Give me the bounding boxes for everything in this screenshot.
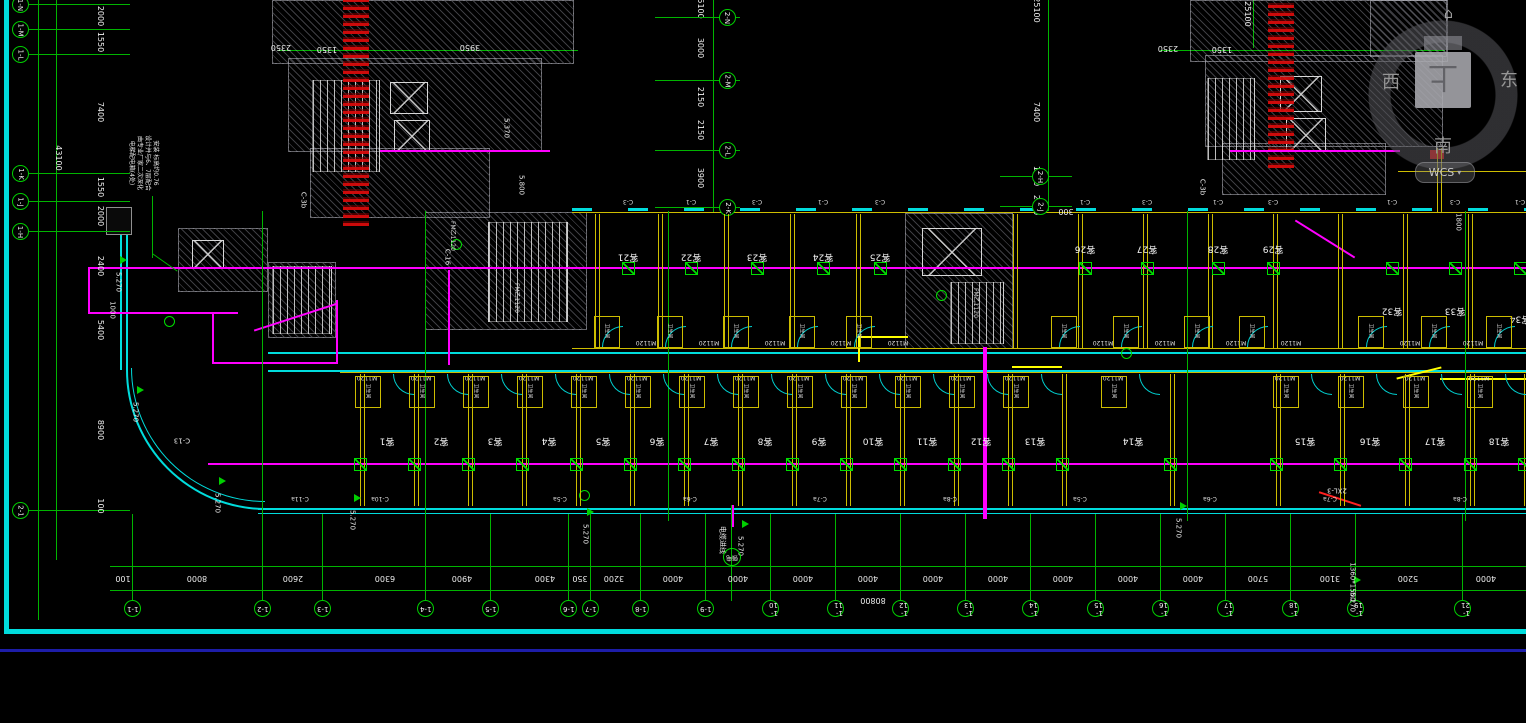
grid-drop-line bbox=[262, 514, 263, 602]
grid-bubble-bottom: 1-17 bbox=[1217, 600, 1234, 617]
bathroom-label: 卫生间 bbox=[1471, 389, 1486, 394]
bathroom-label: 卫生间 bbox=[1425, 329, 1440, 334]
grid-tick bbox=[12, 173, 130, 174]
window-label: C-5a bbox=[1073, 495, 1087, 501]
window-label: C-3 bbox=[1268, 198, 1278, 204]
socket-device-icon bbox=[516, 458, 529, 471]
elevation-text: 5.270 bbox=[1168, 525, 1188, 532]
grid-bubble-bottom: 1-21 bbox=[1454, 600, 1471, 617]
window-label: C-3 bbox=[752, 198, 762, 204]
bathroom-label: 卫生间 bbox=[1243, 329, 1258, 334]
grid-drop-line bbox=[900, 514, 901, 602]
room-label: 客26 bbox=[1075, 244, 1095, 253]
dimension-text: 2000 bbox=[90, 12, 110, 20]
elevation-text: 5.270 bbox=[108, 279, 128, 286]
annotation-text: C-3b bbox=[295, 197, 311, 204]
door-swing-arc bbox=[1041, 374, 1062, 395]
room-label: 客29 bbox=[1263, 244, 1283, 253]
viewport-divider-line bbox=[0, 649, 1526, 652]
wire bbox=[380, 150, 550, 152]
sheet-border-bottom bbox=[4, 629, 1526, 634]
window-label: C-10a bbox=[371, 495, 389, 501]
dimension-text: 8900 bbox=[90, 426, 110, 434]
grid-bubble-left: 1-K bbox=[12, 165, 29, 182]
dimension-total-text: 43100 bbox=[45, 154, 70, 162]
elevation-flag-icon bbox=[137, 386, 144, 394]
dimension-text: 2350 bbox=[271, 43, 291, 51]
grid-tick bbox=[12, 29, 130, 30]
room-label: 客24 bbox=[813, 252, 833, 261]
wire bbox=[1295, 220, 1355, 259]
wcs-selector[interactable]: WCS ▾ bbox=[1415, 162, 1475, 183]
door-label: M1120 bbox=[699, 339, 719, 345]
room-label: 客6 bbox=[650, 436, 665, 445]
door-label: M1120 bbox=[765, 339, 785, 345]
room-label: 客1 bbox=[380, 436, 395, 445]
wire bbox=[88, 267, 90, 314]
elevation-text: 5.270 bbox=[207, 500, 227, 507]
room-label: 客13 bbox=[1025, 436, 1045, 445]
annotation-text: C-3b bbox=[1194, 184, 1210, 191]
socket-device-icon bbox=[678, 458, 691, 471]
room-label: 客34 bbox=[1510, 314, 1526, 323]
grid-bubble-bottom: 1-13 bbox=[957, 600, 974, 617]
grid-drop-line bbox=[1030, 514, 1031, 602]
bathroom-label: 卫生间 bbox=[661, 329, 676, 334]
elevator-shaft bbox=[390, 82, 428, 114]
socket-device-icon bbox=[624, 458, 637, 471]
grid-drop-line bbox=[640, 514, 641, 602]
room-label: 客2 bbox=[434, 436, 449, 445]
grid-bubble-left: 1-M bbox=[12, 21, 29, 38]
dimension-text: 5700 bbox=[1248, 574, 1268, 582]
grid-bubble-left: 1-L bbox=[12, 46, 29, 63]
grid-tick bbox=[12, 510, 130, 511]
window-label: C-1 bbox=[1515, 198, 1525, 204]
room-label: 客9 bbox=[812, 436, 827, 445]
elevation-flag-icon bbox=[742, 520, 749, 528]
socket-device-icon bbox=[354, 458, 367, 471]
wire bbox=[336, 300, 338, 364]
dimension-text: 3900 bbox=[690, 174, 710, 182]
annotation-text: C-13 bbox=[174, 437, 190, 444]
room-label: 客14 bbox=[1123, 436, 1143, 445]
dimension-text: 350 bbox=[572, 574, 587, 582]
dimension-text: 4000 bbox=[1053, 574, 1073, 582]
socket-device-icon bbox=[1518, 458, 1526, 471]
viewcube-east-label[interactable]: 东 bbox=[1500, 66, 1518, 92]
grid-drop-line bbox=[490, 514, 491, 602]
wire-yellow bbox=[1012, 366, 1062, 368]
dimension-text: 2150 bbox=[690, 126, 710, 134]
door-swing-arc bbox=[1311, 374, 1332, 395]
grid-bubble-bottom: 1-10 bbox=[762, 600, 779, 617]
window-sill-line bbox=[258, 508, 1526, 510]
dimension-text: 2600 bbox=[283, 574, 303, 582]
bathroom-label: 卫生间 bbox=[1188, 329, 1203, 334]
annotation-text: 1800 bbox=[1449, 219, 1467, 226]
grid-bubble-bottom: 1-5 bbox=[482, 600, 499, 617]
dimension-text: 4000 bbox=[663, 574, 683, 582]
grid-drop-line bbox=[1095, 514, 1096, 602]
room-label: 客3 bbox=[488, 436, 503, 445]
bathroom-label: 卫生间 bbox=[1117, 329, 1132, 334]
stair-treads bbox=[488, 222, 568, 322]
dimension-text: 4000 bbox=[858, 574, 878, 582]
grid-bubble-bottom: 1-18 bbox=[1282, 600, 1299, 617]
door-label: M1120 bbox=[1281, 339, 1301, 345]
grid-drop-line bbox=[668, 211, 669, 521]
room-partition-wall bbox=[1403, 214, 1408, 348]
corridor-wall bbox=[268, 352, 1526, 354]
room-label: 客10 bbox=[863, 436, 883, 445]
grid-bubble-mid: 2-H bbox=[1032, 168, 1049, 185]
door-label: M1120 bbox=[1155, 339, 1175, 345]
door-label: M1120 bbox=[1093, 339, 1113, 345]
elevator-shaft bbox=[192, 240, 224, 268]
grid-drop-line bbox=[590, 514, 591, 602]
room-label: 客11 bbox=[917, 436, 937, 445]
power-feeder-line bbox=[983, 347, 987, 519]
wire bbox=[212, 314, 214, 364]
viewcube-home-icon[interactable]: ⌂ bbox=[1444, 6, 1453, 22]
grid-drop-line bbox=[1225, 514, 1226, 602]
room-partition-wall bbox=[1338, 214, 1343, 348]
dimension-text: 4300 bbox=[535, 574, 555, 582]
window-label: C-1 bbox=[686, 198, 696, 204]
elevator-shaft bbox=[394, 120, 430, 152]
grid-bubble-bottom: 1-14 bbox=[1022, 600, 1039, 617]
room-label: 客32 bbox=[1382, 306, 1402, 315]
socket-device-icon bbox=[751, 262, 764, 275]
grid-drop-line bbox=[425, 211, 426, 521]
bathroom-label: 卫生间 bbox=[1055, 329, 1070, 334]
dimension-text: 4000 bbox=[1118, 574, 1138, 582]
socket-device-icon bbox=[1056, 458, 1069, 471]
room-label: 客33 bbox=[1445, 306, 1465, 315]
room-label: 客21 bbox=[618, 252, 638, 261]
window-label: C-1 bbox=[1213, 198, 1223, 204]
room-label: 客23 bbox=[747, 252, 767, 261]
dimension-text: 4900 bbox=[452, 574, 472, 582]
grid-bubble-bottom: 1-3 bbox=[314, 600, 331, 617]
dimension-text: 1350 bbox=[1212, 45, 1232, 53]
window-label: C-6a bbox=[683, 495, 697, 501]
socket-device-icon bbox=[1212, 262, 1225, 275]
grid-tick bbox=[12, 231, 130, 232]
room-label: 客25 bbox=[870, 252, 890, 261]
dimension-text: 6300 bbox=[375, 574, 395, 582]
viewcube-south-label[interactable]: 南 bbox=[1434, 132, 1452, 158]
grid-drop-line bbox=[132, 514, 133, 602]
dimension-text: 4000 bbox=[988, 574, 1008, 582]
annotation-text: 1000 bbox=[103, 307, 121, 314]
room-label: 客4 bbox=[542, 436, 557, 445]
window-label: C-5a bbox=[553, 495, 567, 501]
dimension-text: 25100 bbox=[687, 2, 712, 10]
bathroom-label: 卫生间 bbox=[737, 389, 752, 394]
grid-drop-line bbox=[1187, 211, 1188, 521]
room-partition-wall bbox=[1273, 214, 1278, 348]
socket-device-icon bbox=[894, 458, 907, 471]
room-label: 客17 bbox=[1425, 436, 1445, 445]
grid-drop-line bbox=[1290, 514, 1291, 602]
wall-line bbox=[572, 212, 1526, 213]
grid-line-left bbox=[38, 0, 39, 620]
grid-bubble-bottom: 1-9 bbox=[697, 600, 714, 617]
elevation-flag-icon bbox=[354, 494, 361, 502]
socket-device-icon bbox=[462, 458, 475, 471]
annotation-text: 5.800 bbox=[511, 182, 531, 189]
stair-treads bbox=[1207, 78, 1255, 160]
socket-device-icon bbox=[1002, 458, 1015, 471]
grid-bubble-bottom: 1-8 bbox=[632, 600, 649, 617]
elevation-text: 5.270 bbox=[342, 517, 362, 524]
elevation-flag-icon bbox=[219, 477, 226, 485]
dimension-text: 2000 bbox=[90, 212, 110, 220]
annotation-text: 5.370 bbox=[496, 125, 516, 132]
dimension-text: 100 bbox=[115, 574, 130, 582]
wall-line bbox=[572, 348, 1526, 349]
bathroom-label: 卫生间 bbox=[793, 329, 808, 334]
window-label: C-8a bbox=[943, 495, 957, 501]
bathroom-label: 卫生间 bbox=[1007, 389, 1022, 394]
bathroom-label: 卫生间 bbox=[1407, 389, 1422, 394]
elevation-flag-icon bbox=[587, 508, 594, 516]
door-swing-arc bbox=[1376, 374, 1397, 395]
dimension-text: 5200 bbox=[1398, 574, 1418, 582]
socket-device-icon bbox=[1514, 262, 1526, 275]
window-label: C-8a bbox=[1453, 495, 1467, 501]
room-label: 客18 bbox=[1489, 436, 1509, 445]
dimension-text: 4000 bbox=[793, 574, 813, 582]
grid-bubble-bottom: 1-12 bbox=[892, 600, 909, 617]
fire-door-label: FM乙1120 bbox=[960, 300, 990, 306]
elevation-flag-icon bbox=[120, 256, 127, 264]
cad-drawing-canvas[interactable]: 1-N1-M1-L1-K1-J1-H2-12000155074001550200… bbox=[0, 0, 1526, 723]
window-label: C-1 bbox=[1080, 198, 1090, 204]
room-label: 客5 bbox=[596, 436, 611, 445]
socket-device-icon bbox=[840, 458, 853, 471]
bathroom-label: 卫生间 bbox=[1277, 389, 1292, 394]
room-label: 客7 bbox=[704, 436, 719, 445]
wcs-label: WCS bbox=[1429, 166, 1455, 179]
dimension-text: 4000 bbox=[1183, 574, 1203, 582]
socket-device-icon bbox=[786, 458, 799, 471]
socket-device-icon bbox=[1386, 262, 1399, 275]
socket-device-icon bbox=[622, 262, 635, 275]
dimension-text: 1550 bbox=[90, 183, 110, 191]
grid-bubble-bottom: 1-15 bbox=[1087, 600, 1104, 617]
grid-drop-line bbox=[1462, 514, 1463, 602]
grid-tick bbox=[12, 4, 130, 5]
grid-bubble-mid: 2-J bbox=[1032, 198, 1049, 215]
power-bus-line bbox=[208, 463, 1526, 465]
device-circle-icon bbox=[1121, 348, 1132, 359]
grid-bubble-bottom: 1-16 bbox=[1152, 600, 1169, 617]
curtain-wall bbox=[126, 228, 128, 370]
bathroom-label: 卫生间 bbox=[629, 389, 644, 394]
window-label: C-11a bbox=[291, 495, 309, 501]
annotation-note-line: 安装 标高约0.76 bbox=[132, 160, 177, 166]
dimension-text: 2150 bbox=[690, 93, 710, 101]
grid-drop-line bbox=[770, 514, 771, 602]
socket-device-icon bbox=[1079, 262, 1092, 275]
window-label: C-1 bbox=[1387, 198, 1397, 204]
grid-drop-line bbox=[322, 514, 323, 602]
socket-device-icon bbox=[1399, 458, 1412, 471]
grid-bubble-left: 1-H bbox=[12, 223, 29, 240]
elevation-text: 5.270 bbox=[575, 531, 595, 538]
dimension-total-text: 80800 bbox=[860, 596, 885, 604]
bathroom-label: 卫生间 bbox=[1362, 329, 1377, 334]
socket-device-icon bbox=[1164, 458, 1177, 471]
grid-bubble-bottom: 1-4 bbox=[417, 600, 434, 617]
socket-device-icon bbox=[874, 262, 887, 275]
room-partition-wall bbox=[1013, 214, 1018, 348]
door-label: M1120 bbox=[888, 339, 908, 345]
wire bbox=[448, 270, 450, 365]
dimension-text: 2350 bbox=[1158, 44, 1178, 52]
bathroom-label: 卫生间 bbox=[727, 329, 742, 334]
sheet-border-left bbox=[4, 0, 9, 634]
room-label: 客28 bbox=[1208, 244, 1228, 253]
grid-drop-line bbox=[262, 211, 263, 521]
wire bbox=[212, 362, 338, 364]
grid-drop-line bbox=[835, 514, 836, 602]
grid-drop-line bbox=[965, 514, 966, 602]
power-bus-line bbox=[88, 267, 1526, 269]
power-riser-label: 强电 bbox=[724, 549, 740, 565]
dimension-text: 1350 bbox=[317, 45, 337, 53]
dimension-text: 8000 bbox=[187, 574, 207, 582]
bathroom-label: 卫生间 bbox=[850, 329, 865, 334]
room-partition-wall bbox=[1468, 214, 1473, 348]
door-label: M1120 bbox=[1463, 339, 1483, 345]
grid-bubble-bottom: 1-11 bbox=[827, 600, 844, 617]
socket-device-icon bbox=[948, 458, 961, 471]
window-sill-line bbox=[258, 513, 1526, 514]
grid-bubble-mid: 2-M bbox=[719, 72, 736, 89]
dimension-text: 25100 bbox=[1023, 6, 1048, 14]
dimension-text: 25100 bbox=[1234, 10, 1259, 18]
grid-bubble-bottom: 1-7 bbox=[582, 600, 599, 617]
door-label: M1120 bbox=[1400, 339, 1420, 345]
annotation-leader bbox=[152, 196, 153, 258]
device-circle-icon bbox=[936, 290, 947, 301]
annotation-text: 电缆进线 bbox=[708, 537, 736, 544]
bathroom-label: 卫生间 bbox=[359, 389, 374, 394]
bathroom-label: 卫生间 bbox=[598, 329, 613, 334]
socket-device-icon bbox=[1267, 262, 1280, 275]
curved-curtain-wall bbox=[131, 368, 265, 502]
bathroom-label: 卫生间 bbox=[467, 389, 482, 394]
building-mass bbox=[272, 0, 574, 64]
grid-drop-line bbox=[705, 514, 706, 602]
wall-line bbox=[340, 372, 1526, 373]
fire-riser-cluster bbox=[1268, 0, 1294, 168]
bathroom-label: 卫生间 bbox=[521, 389, 536, 394]
grid-bubble-bottom: 1-6 bbox=[560, 600, 577, 617]
fire-riser-cluster bbox=[343, 0, 369, 226]
socket-device-icon bbox=[1334, 458, 1347, 471]
window-label: C-3 bbox=[1142, 198, 1152, 204]
grid-drop-line bbox=[425, 514, 426, 602]
elevation-text: 5.270 bbox=[125, 409, 145, 416]
window-label: C-6a bbox=[1203, 495, 1217, 501]
dimension-text: 4000 bbox=[728, 574, 748, 582]
grid-bubble-mid: 2-N bbox=[719, 9, 736, 26]
window-label: C-7a bbox=[813, 495, 827, 501]
bathroom-label: 卫生间 bbox=[899, 389, 914, 394]
grid-tick bbox=[12, 54, 130, 55]
viewcube[interactable]: 上 西 东 南 ⌂ WCS ▾ bbox=[1360, 10, 1526, 195]
dimension-text: 3200 bbox=[604, 574, 624, 582]
annotation-text: C-16 bbox=[439, 254, 455, 261]
socket-device-icon bbox=[1270, 458, 1283, 471]
dimension-text: 100 bbox=[92, 502, 107, 510]
room-label: 客15 bbox=[1295, 436, 1315, 445]
socket-device-icon bbox=[685, 262, 698, 275]
socket-device-icon bbox=[1141, 262, 1154, 275]
door-swing-arc bbox=[1139, 374, 1160, 395]
socket-device-icon bbox=[408, 458, 421, 471]
socket-device-icon bbox=[732, 458, 745, 471]
window-label: C-7a bbox=[1323, 495, 1337, 501]
bathroom-label: 卫生间 bbox=[575, 389, 590, 394]
annotation-text: 2XL-3 bbox=[1327, 487, 1347, 494]
dimension-text: 5400 bbox=[90, 326, 110, 334]
elevation-flag-icon bbox=[1180, 502, 1187, 510]
mid-grid-line bbox=[713, 0, 714, 212]
grid-bubble-left: 2-1 bbox=[12, 502, 29, 519]
socket-device-icon bbox=[817, 262, 830, 275]
dimension-text: 3000 bbox=[690, 44, 710, 52]
bathroom-label: 卫生间 bbox=[953, 389, 968, 394]
window-label: C-3 bbox=[875, 198, 885, 204]
grid-tick bbox=[12, 201, 130, 202]
bathroom-label: 卫生间 bbox=[413, 389, 428, 394]
curtain-wall bbox=[120, 228, 122, 370]
grid-drop-line bbox=[1160, 514, 1161, 602]
device-circle-icon bbox=[164, 316, 175, 327]
window-label: C-3 bbox=[623, 198, 633, 204]
fire-door-label: FM乙1120 bbox=[501, 295, 531, 301]
viewcube-top-edge[interactable] bbox=[1424, 36, 1462, 50]
fire-door-label: FM乙1120 bbox=[437, 233, 467, 239]
viewcube-top-face[interactable]: 上 bbox=[1415, 52, 1471, 108]
bathroom-label: 卫生间 bbox=[683, 389, 698, 394]
power-riser-circle: 强电 bbox=[723, 548, 741, 566]
dimension-text: 300 bbox=[1058, 207, 1073, 215]
dimension-text: 1550 bbox=[90, 38, 110, 46]
socket-device-icon bbox=[1449, 262, 1462, 275]
grid-bubble-mid: 2-L bbox=[719, 142, 736, 159]
grid-bubble-bottom: 1-1 bbox=[124, 600, 141, 617]
door-swing-arc bbox=[1505, 374, 1526, 395]
dimension-text: 7400 bbox=[1026, 108, 1046, 116]
grid-bubble-left: 1-J bbox=[12, 193, 29, 210]
socket-device-icon bbox=[1464, 458, 1477, 471]
viewcube-west-label[interactable]: 西 bbox=[1382, 68, 1400, 94]
grid-drop-line bbox=[1465, 211, 1466, 521]
bathroom-label: 卫生间 bbox=[791, 389, 806, 394]
window-label: C-3 bbox=[1450, 198, 1460, 204]
door-swing-arc bbox=[1441, 374, 1462, 395]
wcs-dropdown-icon: ▾ bbox=[1457, 168, 1461, 177]
grid-bubble-bottom: 1-2 bbox=[254, 600, 271, 617]
bathroom-label: 卫生间 bbox=[1490, 329, 1505, 334]
